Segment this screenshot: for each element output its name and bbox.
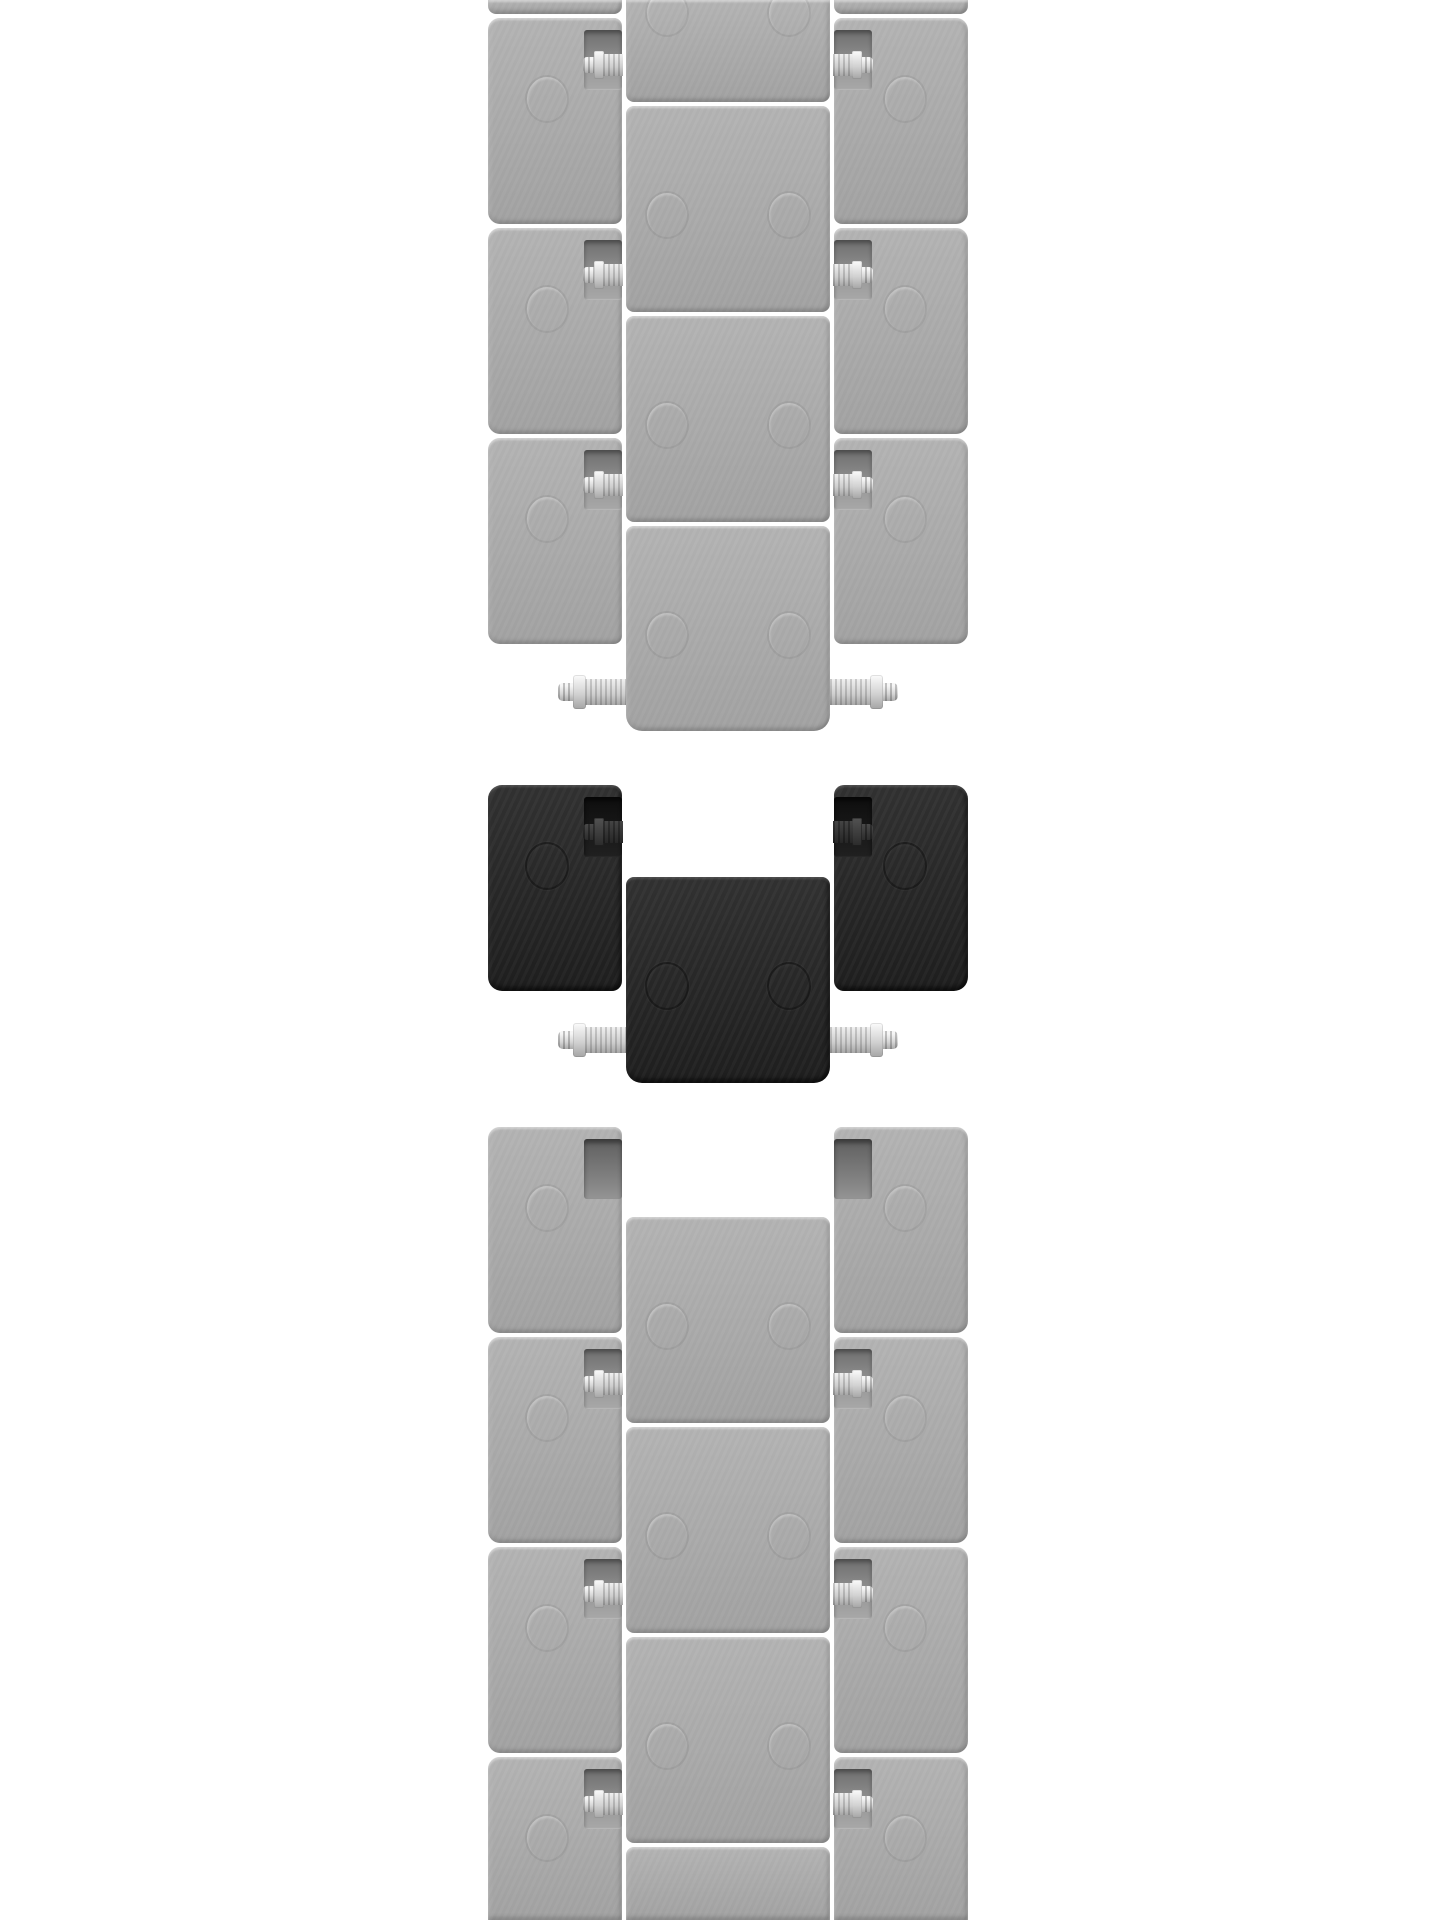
link-pin	[583, 260, 623, 290]
stamp-mark	[883, 285, 927, 333]
link-pin	[830, 674, 898, 710]
pin-notch	[834, 1559, 872, 1619]
pin-notch	[584, 1559, 622, 1619]
pin-collar	[852, 471, 862, 499]
pin-shaft	[603, 1583, 623, 1605]
stamp-mark	[525, 842, 569, 890]
pin-shaft	[585, 679, 626, 705]
outer-left-row-2	[488, 1337, 622, 1543]
outer-left-sliver	[488, 0, 622, 14]
stamp-mark	[767, 1722, 811, 1770]
link-pin	[833, 1579, 873, 1609]
pin-shaft	[833, 54, 853, 76]
stamp-mark	[525, 1814, 569, 1862]
center-link-3	[626, 316, 830, 522]
outer-right-row-2	[834, 228, 968, 434]
stamp-mark	[883, 1604, 927, 1652]
stamp-mark	[883, 1184, 927, 1232]
pin-notch	[834, 1349, 872, 1409]
stamp-mark	[645, 1722, 689, 1770]
pin-notch	[834, 797, 872, 857]
pin-shaft	[833, 821, 853, 843]
stamp-mark	[883, 842, 927, 890]
pin-notch	[834, 30, 872, 90]
stamp-mark	[645, 401, 689, 449]
outer-right-sliver	[834, 0, 968, 14]
pin-shaft	[603, 1373, 623, 1395]
link-pin	[583, 50, 623, 80]
pin-collar	[852, 51, 862, 79]
link-pin	[583, 1789, 623, 1819]
pin-notch	[584, 1769, 622, 1829]
stamp-mark	[645, 611, 689, 659]
center-link-3	[626, 1637, 830, 1843]
outer-left-row-1	[488, 1127, 622, 1333]
link-pin	[833, 1789, 873, 1819]
link-pin	[833, 470, 873, 500]
pin-notch	[584, 30, 622, 90]
pin-collar	[852, 1370, 862, 1398]
pin-collar	[852, 1790, 862, 1818]
link-pin	[833, 260, 873, 290]
link-pin	[583, 1579, 623, 1609]
link-pin	[833, 1369, 873, 1399]
stamp-mark	[767, 1302, 811, 1350]
pin-notch	[834, 450, 872, 510]
outer-left-row-1	[488, 18, 622, 224]
pin-notch	[834, 240, 872, 300]
stamp-mark	[883, 495, 927, 543]
pin-shaft	[603, 54, 623, 76]
stamp-mark	[525, 1394, 569, 1442]
link-pin	[583, 1369, 623, 1399]
pin-notch	[834, 1769, 872, 1829]
outer-right-row-3	[834, 1547, 968, 1753]
outer-left-row-3	[488, 1547, 622, 1753]
stamp-mark	[645, 962, 689, 1010]
link-pin	[558, 1022, 626, 1058]
link-pin	[833, 50, 873, 80]
center-link-1	[626, 0, 830, 102]
pin-shaft	[603, 821, 623, 843]
stamp-mark	[767, 401, 811, 449]
pin-notch	[584, 797, 622, 857]
stamp-mark	[883, 1394, 927, 1442]
link-pin	[833, 817, 873, 847]
link-pin	[558, 674, 626, 710]
stamp-mark	[525, 495, 569, 543]
stamp-mark	[525, 1604, 569, 1652]
product-photo-watch-bracelet-link	[0, 0, 1440, 1920]
outer-right-row-2	[834, 1337, 968, 1543]
pin-notch	[584, 1139, 622, 1199]
stamp-mark	[767, 0, 811, 37]
center-link-4	[626, 526, 830, 731]
outer-right-row-4	[834, 1757, 968, 1920]
pin-shaft	[585, 1027, 626, 1053]
pin-notch	[584, 450, 622, 510]
pin-notch	[584, 1349, 622, 1409]
stamp-mark	[767, 191, 811, 239]
link-pin	[583, 470, 623, 500]
pin-notch	[834, 1139, 872, 1199]
center-link-2	[626, 106, 830, 312]
link-pin	[583, 817, 623, 847]
center-link-1	[626, 1217, 830, 1423]
center-link-4	[626, 1847, 830, 1920]
stamp-mark	[525, 285, 569, 333]
pin-shaft	[833, 1373, 853, 1395]
center-link-2	[626, 1427, 830, 1633]
stamp-mark	[645, 1302, 689, 1350]
pin-shaft	[830, 679, 871, 705]
stamp-mark	[883, 1814, 927, 1862]
pin-shaft	[833, 474, 853, 496]
stamp-mark	[645, 0, 689, 37]
stamp-mark	[767, 1512, 811, 1560]
stamp-mark	[767, 611, 811, 659]
pin-collar	[852, 818, 862, 846]
pin-collar	[870, 675, 883, 709]
pin-collar	[852, 1580, 862, 1608]
stamp-mark	[525, 75, 569, 123]
pin-shaft	[603, 264, 623, 286]
stamp-mark	[525, 1184, 569, 1232]
pin-collar	[870, 1023, 883, 1057]
outer-right-row-3	[834, 438, 968, 644]
stamp-mark	[767, 962, 811, 1010]
pin-shaft	[833, 1583, 853, 1605]
pin-shaft	[603, 1793, 623, 1815]
outer-right-row-1	[834, 1127, 968, 1333]
stamp-mark	[883, 75, 927, 123]
pin-collar	[852, 261, 862, 289]
black-center-block	[626, 877, 830, 1083]
stamp-mark	[645, 191, 689, 239]
outer-left-row-3	[488, 438, 622, 644]
pin-shaft	[833, 1793, 853, 1815]
stamp-mark	[645, 1512, 689, 1560]
pin-notch	[584, 240, 622, 300]
pin-shaft	[603, 474, 623, 496]
pin-shaft	[833, 264, 853, 286]
link-pin	[830, 1022, 898, 1058]
outer-right-row-1	[834, 18, 968, 224]
outer-left-row-2	[488, 228, 622, 434]
black-outer-left	[488, 785, 622, 991]
pin-shaft	[830, 1027, 871, 1053]
outer-left-row-4	[488, 1757, 622, 1920]
black-outer-right	[834, 785, 968, 991]
